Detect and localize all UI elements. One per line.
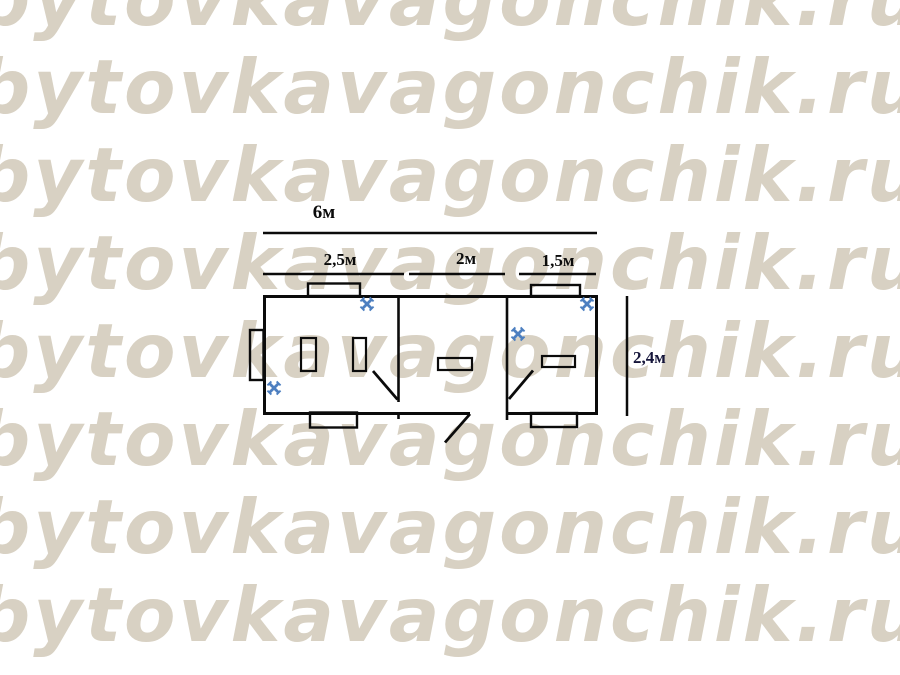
fixture-room2-table — [438, 358, 472, 370]
x-marker-icon — [511, 327, 524, 340]
dim-label-section-1: 2,5м — [324, 250, 357, 270]
dim-label-section-2: 2м — [456, 249, 476, 269]
page: bytovkavagonchik.ru bytovkavagonchik.ru … — [0, 0, 900, 675]
fixture-room3-table — [542, 356, 575, 367]
fixture-room1-a — [301, 338, 316, 371]
door-leaf-entrance — [445, 414, 470, 443]
dim-label-height: 2,4м — [633, 348, 666, 368]
door-leaf-room3 — [509, 371, 533, 400]
walls — [265, 297, 597, 443]
fixture-room1-b — [353, 338, 366, 371]
x-marker-icon — [267, 381, 280, 394]
window-top-left — [308, 284, 360, 297]
window-top-right — [531, 285, 580, 296]
dim-label-section-3: 1,5м — [542, 251, 575, 271]
x-marker-icon — [580, 297, 593, 310]
x-marker-icon — [360, 297, 373, 310]
door-leaf-room1 — [373, 371, 398, 400]
fixtures — [301, 338, 575, 371]
dim-label-total-width: 6м — [313, 202, 335, 224]
windows — [250, 284, 580, 428]
floor-plan — [0, 0, 900, 675]
window-left-wall — [250, 330, 264, 380]
window-bottom-right — [531, 413, 577, 427]
